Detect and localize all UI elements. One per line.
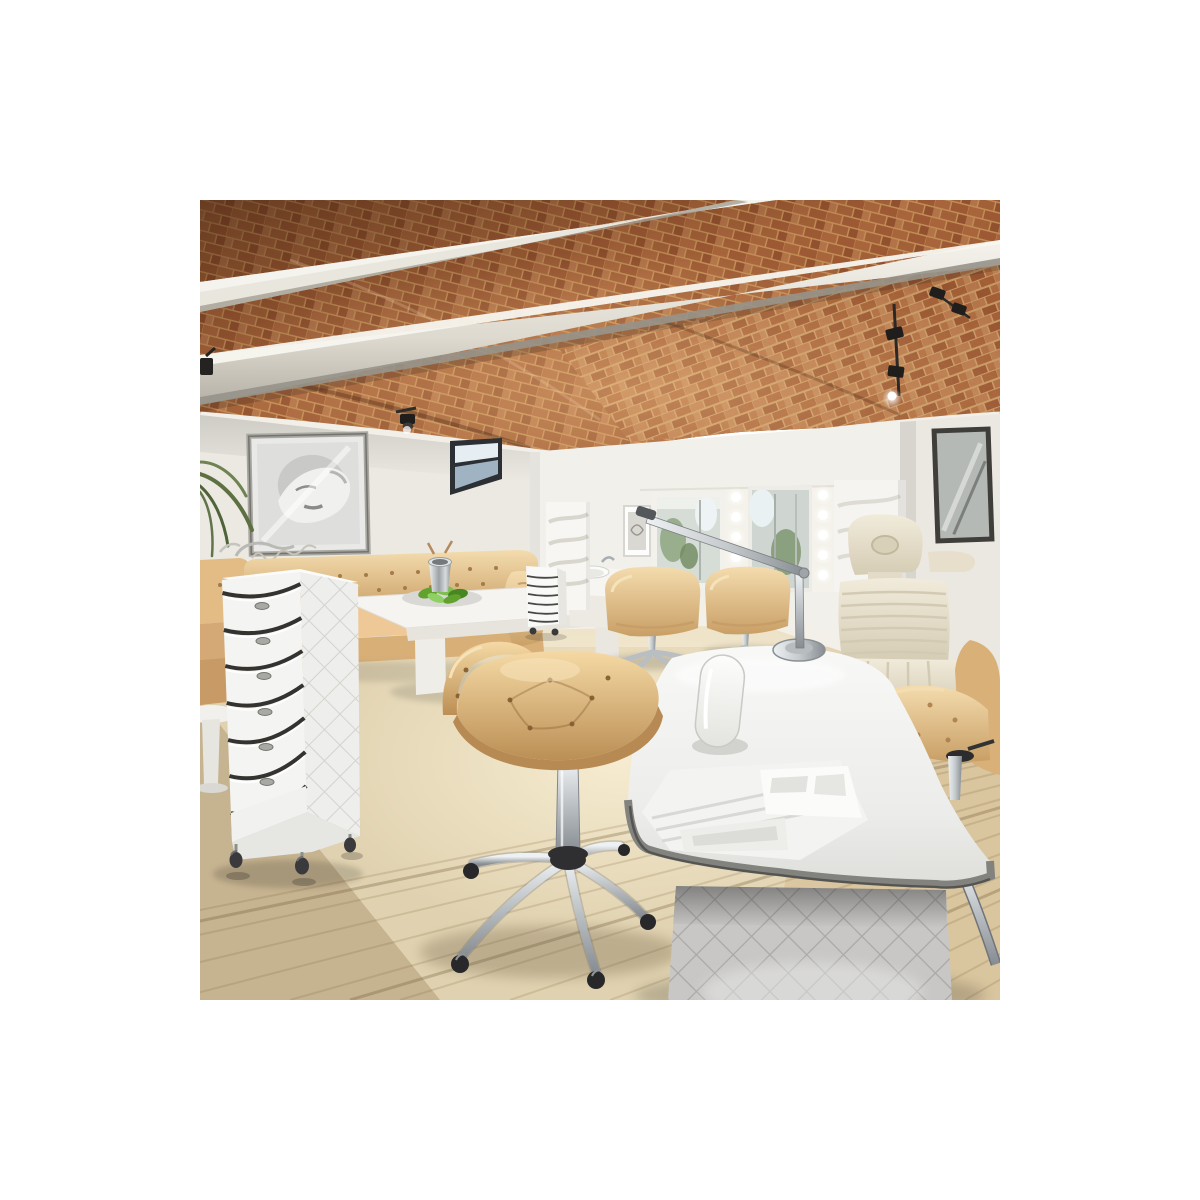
salon-photo-svg bbox=[200, 200, 1000, 1000]
right-wall-picture bbox=[934, 429, 992, 541]
portrait-picture bbox=[249, 434, 368, 554]
salon-photo bbox=[200, 200, 1000, 1000]
headrest-hole bbox=[872, 536, 898, 554]
bulb-strip-right bbox=[812, 485, 834, 592]
gas-lift bbox=[948, 756, 962, 800]
hollywood-bulbs bbox=[813, 485, 833, 585]
page: { "page": { "background": "#ffffff", "ti… bbox=[0, 0, 1200, 1200]
backrest bbox=[838, 578, 949, 662]
chair-armrest bbox=[928, 551, 975, 572]
stool-column bbox=[556, 762, 580, 852]
drawer-trolley bbox=[220, 543, 363, 886]
